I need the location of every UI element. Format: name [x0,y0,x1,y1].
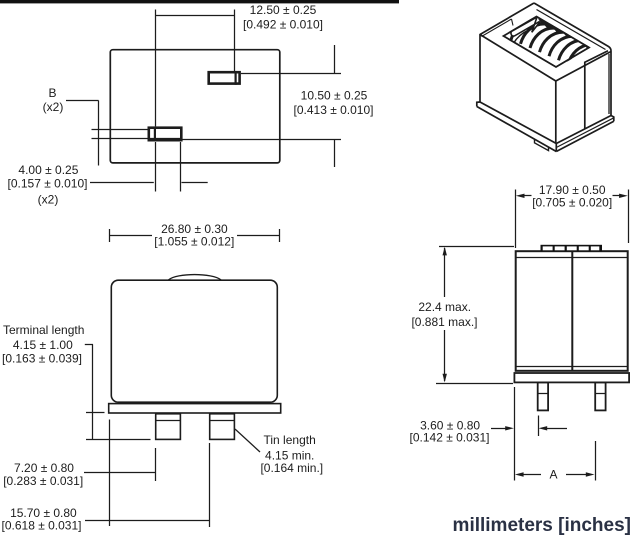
svg-text:[0.164 min.]: [0.164 min.] [260,461,323,475]
svg-text:4.15 ± 1.00: 4.15 ± 1.00 [13,338,73,352]
svg-text:(x2): (x2) [38,192,59,206]
svg-text:A: A [549,468,557,482]
svg-text:millimeters [inches]: millimeters [inches] [453,515,631,536]
svg-text:[0.142 ± 0.031]: [0.142 ± 0.031] [410,431,490,445]
svg-text:22.4 max.: 22.4 max. [418,300,471,314]
svg-text:[0.705 ± 0.020]: [0.705 ± 0.020] [532,196,612,210]
svg-text:Terminal length: Terminal length [3,323,84,337]
svg-text:[0.618 ± 0.031]: [0.618 ± 0.031] [2,519,82,533]
svg-text:4.00 ± 0.25: 4.00 ± 0.25 [18,163,78,177]
svg-text:[0.163 ± 0.039]: [0.163 ± 0.039] [2,352,82,366]
svg-text:12.50 ± 0.25: 12.50 ± 0.25 [250,3,317,17]
svg-text:[0.413 ± 0.010]: [0.413 ± 0.010] [294,103,374,117]
svg-text:[0.881 max.]: [0.881 max.] [411,315,477,329]
svg-text:B: B [48,86,56,100]
svg-text:Tin length: Tin length [264,433,316,447]
svg-text:[0.157 ± 0.010]: [0.157 ± 0.010] [8,176,88,190]
svg-text:15.70 ± 0.80: 15.70 ± 0.80 [10,506,77,520]
svg-text:[0.492 ± 0.010]: [0.492 ± 0.010] [243,18,323,32]
svg-text:[1.055 ± 0.012]: [1.055 ± 0.012] [154,235,234,249]
svg-text:[0.283 ± 0.031]: [0.283 ± 0.031] [3,474,83,488]
svg-text:(x2): (x2) [43,100,64,114]
svg-text:10.50 ± 0.25: 10.50 ± 0.25 [301,89,368,103]
